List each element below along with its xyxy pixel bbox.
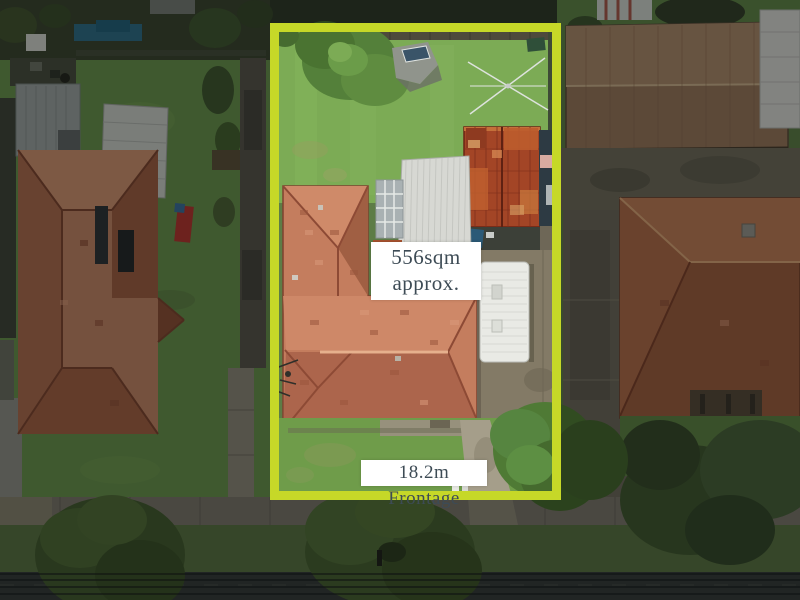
rusty-container-shed <box>464 127 540 227</box>
area-label-line1: 556sqm <box>371 244 481 270</box>
caravan <box>480 262 534 362</box>
area-label: 556sqm approx. <box>371 242 481 300</box>
area-label-line2: approx. <box>371 270 481 296</box>
frontage-label: 18.2m Frontage <box>361 460 487 486</box>
green-cover <box>526 37 545 52</box>
aerial-property-photo: 556sqm approx. 18.2m Frontage <box>0 0 800 600</box>
